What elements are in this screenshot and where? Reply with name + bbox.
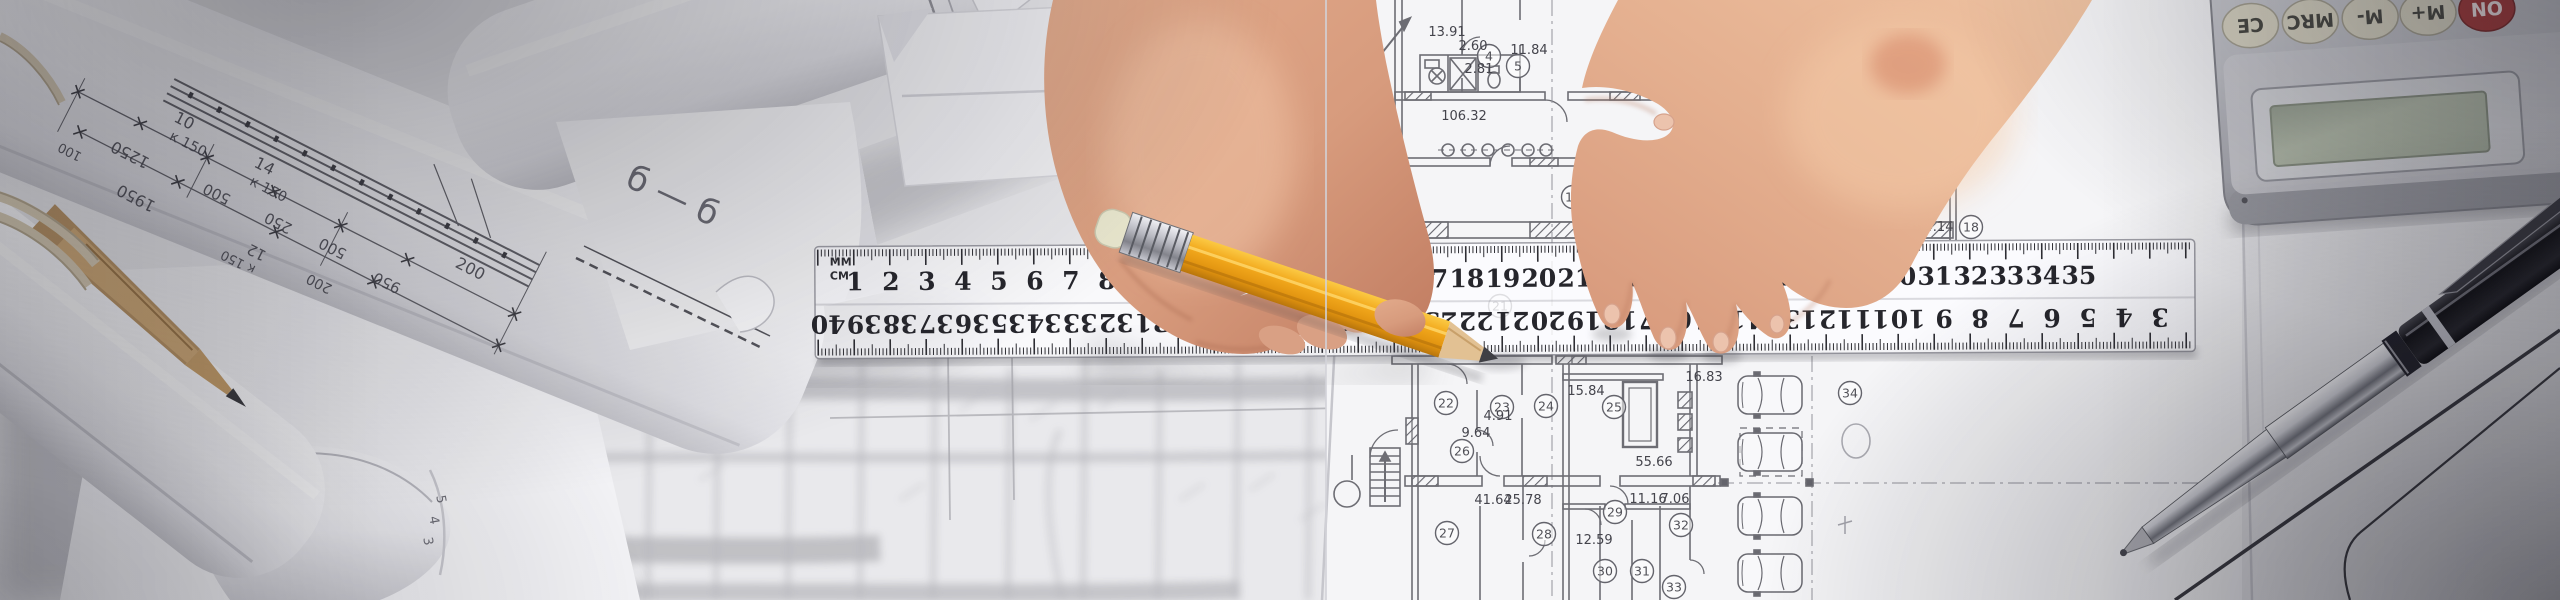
room-number: 26 — [1454, 444, 1470, 459]
room-number: 24 — [1538, 399, 1554, 414]
car-mirror — [1754, 372, 1760, 376]
dimension-label: 15.84 — [1567, 384, 1604, 399]
room-number: 32 — [1673, 518, 1689, 533]
calculator-button-label: M+ — [2410, 0, 2446, 24]
dimension-label: 106.32 — [1441, 109, 1487, 124]
ruler-number-bottom: 38 — [883, 309, 918, 338]
dimension-label: 2.60 — [1459, 39, 1488, 54]
car-symbol — [1738, 550, 1802, 596]
ruler-number-bottom: 34 — [1027, 308, 1062, 337]
ruler-number-bottom: 21 — [1495, 306, 1530, 335]
calculator-button-label: CE — [2236, 13, 2264, 37]
car-mirror — [1754, 592, 1760, 596]
room-number: 33 — [1666, 580, 1682, 595]
room-number: 30 — [1597, 564, 1613, 579]
ruler-number-bottom: 5 — [2079, 303, 2097, 332]
car-symbol — [1738, 429, 1802, 475]
car-body — [1738, 376, 1802, 414]
car-mirror — [1754, 429, 1760, 433]
dimension-label: 25.78 — [1504, 493, 1541, 508]
ruler-number-top: 34 — [2025, 261, 2060, 290]
calculator-button-label: ON — [2470, 0, 2504, 20]
car-body — [1738, 554, 1802, 592]
ruler-number-top: 5 — [990, 267, 1008, 296]
ruler-number-top: 6 — [1026, 266, 1044, 295]
dimension-label: 4.91 — [1484, 409, 1513, 424]
ruler-number-top: 20 — [1521, 264, 1556, 293]
room-number: 29 — [1607, 505, 1623, 520]
ruler-number-bottom: 3 — [2151, 302, 2169, 331]
dimension-label: 16.83 — [1685, 370, 1722, 385]
dimension-label: 2.81 — [1465, 62, 1494, 77]
car-mirror — [1754, 493, 1760, 497]
room-number: 18 — [1963, 220, 1979, 235]
ruler-number-bottom: 20 — [1531, 306, 1566, 335]
photo-architect-workspace: 451118212022232425262728293031323334 13.… — [0, 0, 2560, 600]
ruler-number-bottom: 11 — [1855, 304, 1890, 333]
room-number: 25 — [1606, 400, 1622, 415]
ruler-number-top: 35 — [2061, 261, 2096, 290]
ruler-number-top: 18 — [1449, 264, 1484, 293]
ruler-number-top: 4 — [954, 267, 972, 296]
ruler-number-top: 19 — [1485, 264, 1520, 293]
ruler-number-top: 31 — [1917, 262, 1952, 291]
car-mirror — [1754, 471, 1760, 475]
car-mirror — [1754, 550, 1760, 554]
room-number: 5 — [1514, 59, 1522, 74]
calculator: CEMRCM-M+ON — [2205, 0, 2560, 236]
dimension-label: 13.91 — [1428, 25, 1465, 40]
calculator-button-label: MRC — [2286, 8, 2335, 33]
car-symbol — [1738, 493, 1802, 539]
ruler-number-bottom: 10 — [1891, 304, 1926, 333]
car-body — [1738, 433, 1802, 471]
room-number: 27 — [1439, 526, 1455, 541]
car-symbol — [1738, 372, 1802, 418]
room-number: 28 — [1536, 527, 1552, 542]
calculator-button-label: M- — [2356, 4, 2384, 28]
ruler-number-bottom: 35 — [991, 308, 1026, 337]
room-number: 34 — [1842, 386, 1858, 401]
ruler-number-bottom: 36 — [955, 309, 990, 338]
ruler-number-top: 33 — [1989, 261, 2024, 290]
room-number: 22 — [1438, 396, 1454, 411]
ruler-number-bottom: 32 — [1099, 308, 1134, 337]
ruler-number-bottom: 39 — [847, 309, 882, 338]
dimension-label: 55.66 — [1635, 455, 1672, 470]
dimension-label: 11.84 — [1510, 43, 1547, 58]
dimension-label: 9.64 — [1462, 426, 1491, 441]
ruler-number-bottom: 8 — [1971, 303, 1989, 332]
ruler-number-bottom: 12 — [1819, 304, 1854, 333]
ruler-unit-cm: CM — [830, 269, 849, 282]
dimension-label: 7.06 — [1661, 492, 1690, 507]
ruler-number-bottom: 9 — [1935, 304, 1953, 333]
car-mirror — [1754, 535, 1760, 539]
ruler-number-top: 32 — [1953, 261, 1988, 290]
car-mirror — [1754, 414, 1760, 418]
ruler-number-bottom: 7 — [2007, 303, 2025, 332]
ruler-number-top: 7 — [1062, 266, 1080, 295]
ruler-number-bottom: 22 — [1459, 306, 1494, 335]
car-body — [1738, 497, 1802, 535]
ruler: 1234567891011121314151617181920212223242… — [810, 239, 2196, 365]
ruler-number-bottom: 40 — [811, 309, 846, 338]
ruler-number-top: 3 — [918, 267, 936, 296]
ruler-unit-mm: MM — [830, 255, 852, 268]
dimension-label: 12.59 — [1575, 533, 1612, 548]
ruler-number-bottom: 37 — [919, 309, 954, 338]
room-number: 31 — [1634, 564, 1650, 579]
ruler-number-bottom: 4 — [2115, 303, 2133, 332]
ruler-number-top: 2 — [882, 267, 900, 296]
ruler-number-bottom: 6 — [2043, 303, 2061, 332]
